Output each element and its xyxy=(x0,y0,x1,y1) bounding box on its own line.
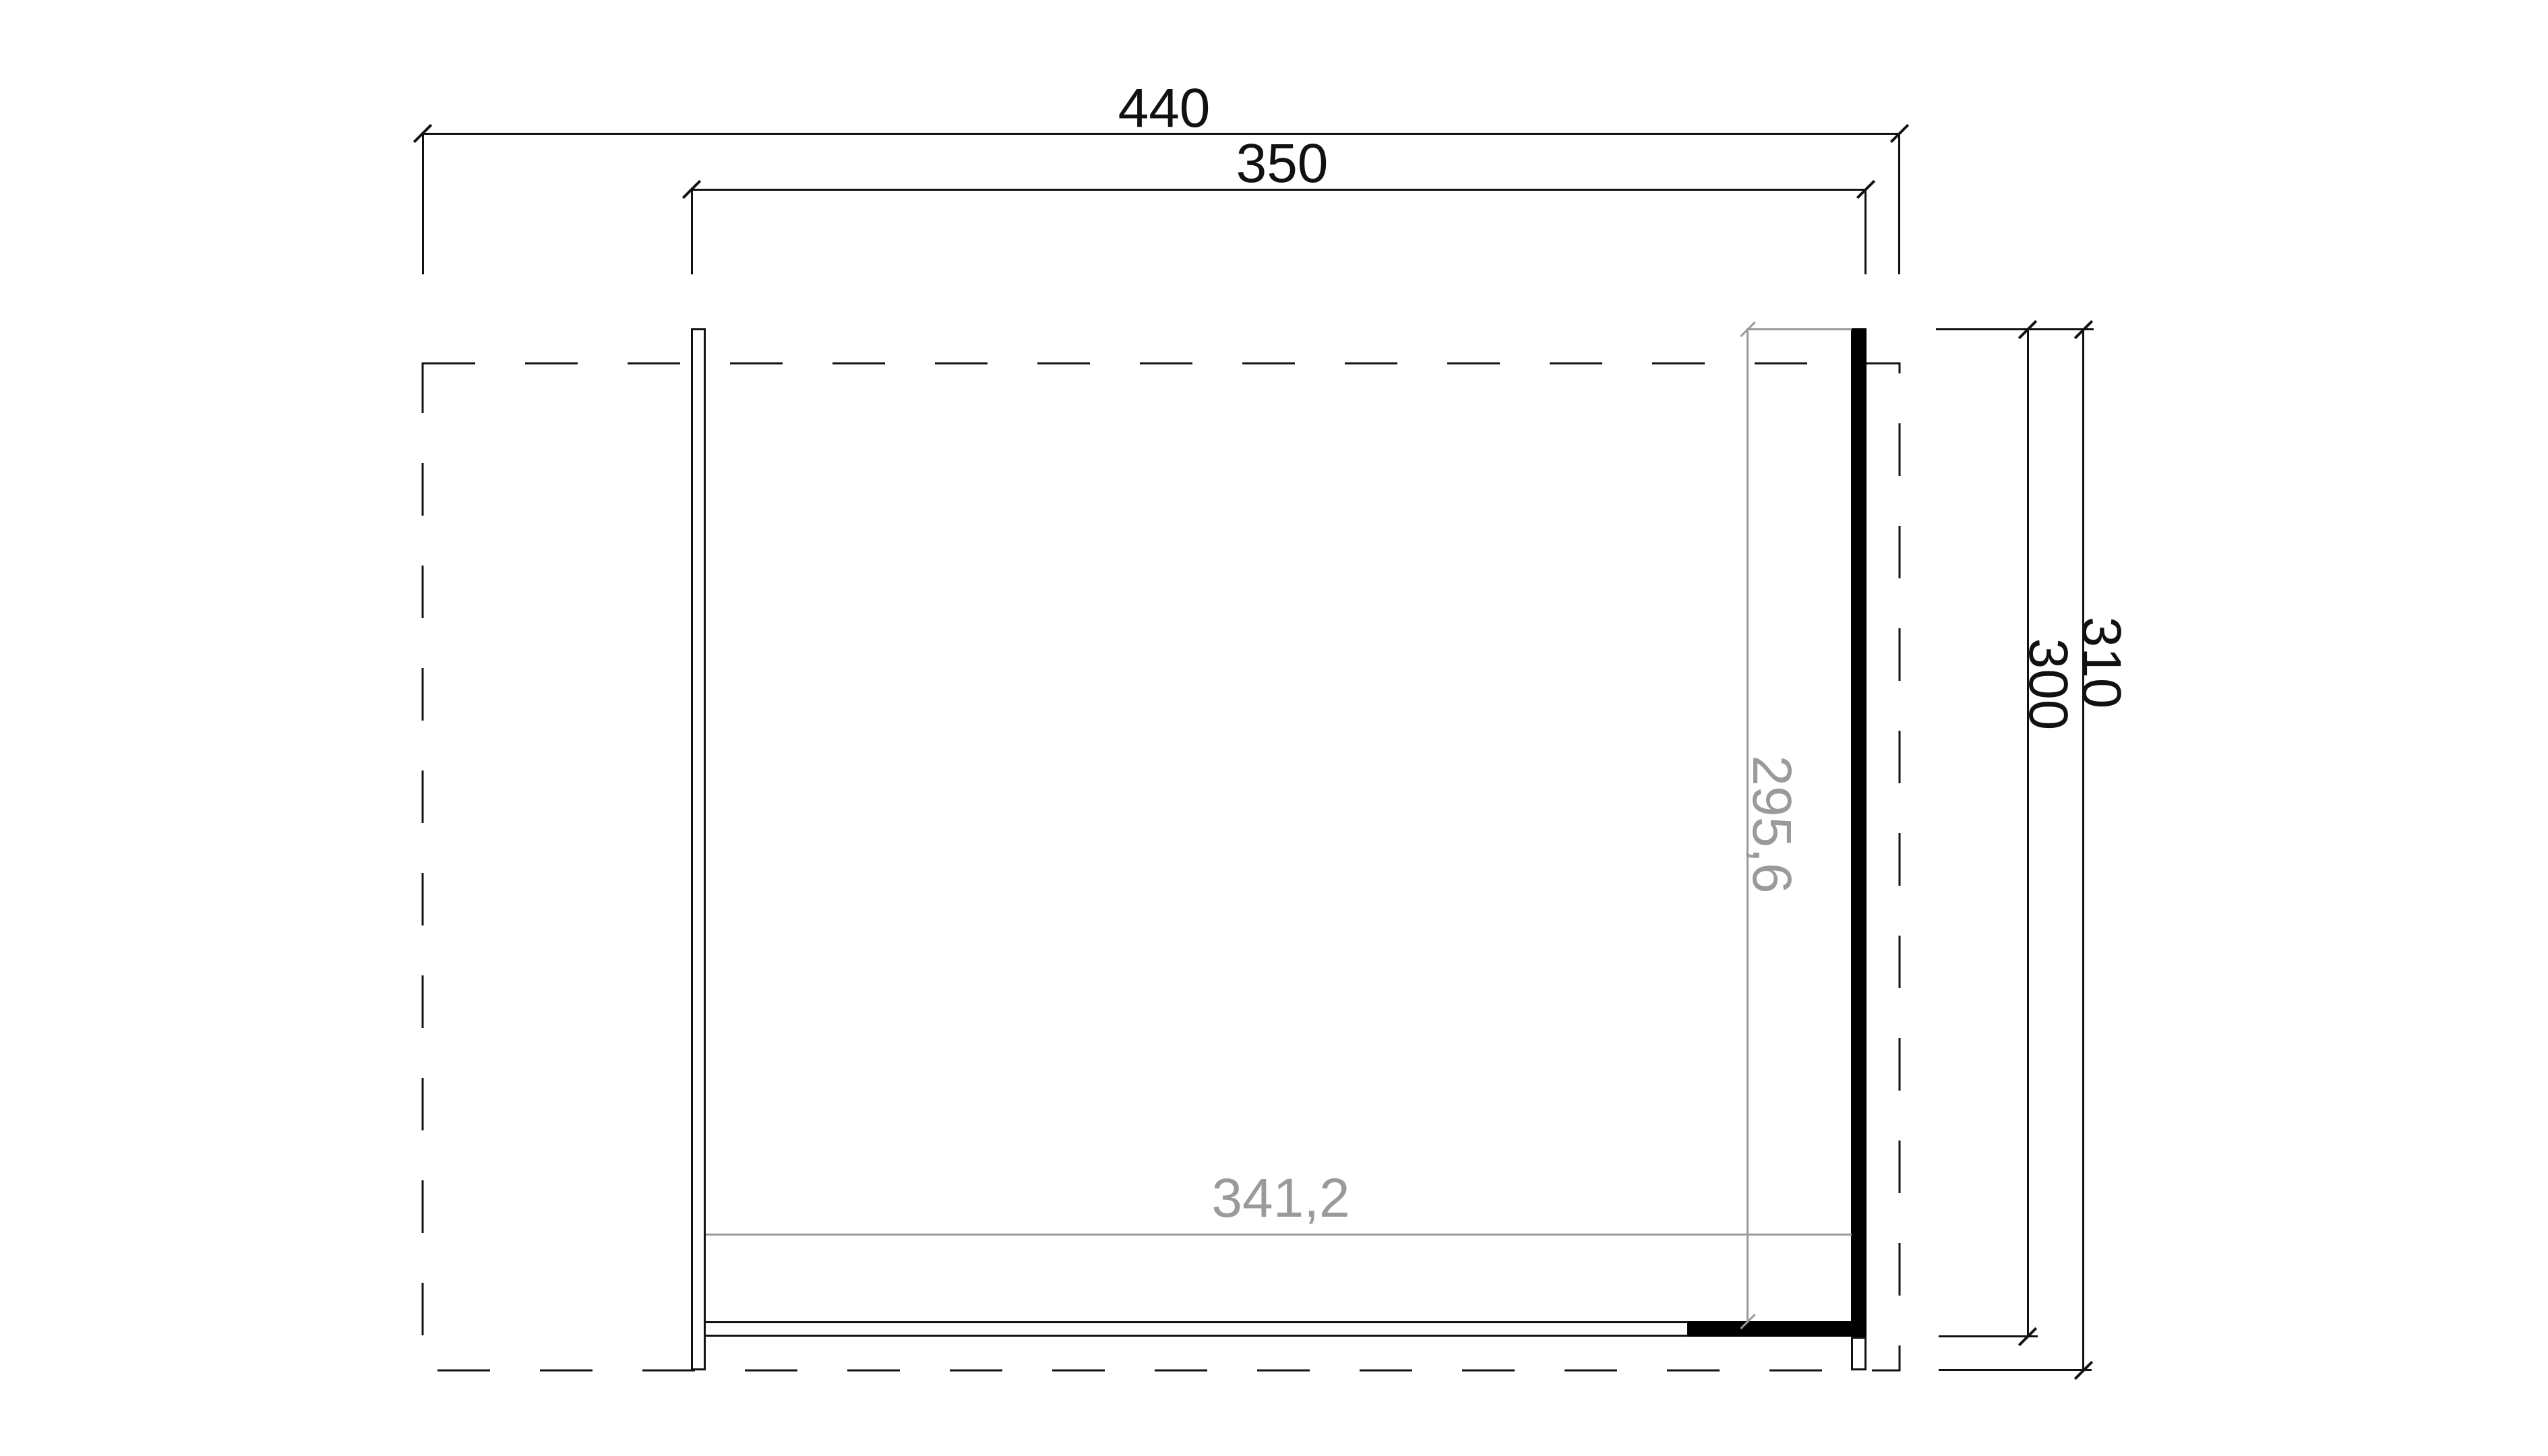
wall-back xyxy=(704,1321,1689,1337)
label-interior-depth: 295,6 xyxy=(1744,755,1799,893)
dashed-outline-layer xyxy=(0,0,2548,1456)
label-side-wall-length: 310 xyxy=(2073,617,2129,709)
wall-back-highlighted-segment xyxy=(1687,1321,1867,1337)
wall-left xyxy=(691,328,706,1370)
extension-line-right-top xyxy=(1936,328,2094,330)
extension-line-right-bottom-310 xyxy=(1939,1369,2092,1371)
label-wall-outer-depth: 300 xyxy=(2020,638,2075,731)
extension-line-440-left xyxy=(422,133,424,274)
extension-line-440-right xyxy=(1898,133,1900,274)
dashed-overhang-outline xyxy=(423,363,1900,1370)
extension-line-350-right xyxy=(1864,189,1867,274)
wall-right-highlighted-segment xyxy=(1851,328,1867,1337)
label-overall-width: 440 xyxy=(1118,81,1211,136)
extension-line-350-left xyxy=(691,189,693,274)
dimension-line-310 xyxy=(2082,329,2084,1371)
label-wall-outer-width: 350 xyxy=(1236,136,1329,191)
floor-plan-drawing: 440 350 295,6 341,2 300 310 xyxy=(0,0,2548,1456)
extension-line-right-bottom-300 xyxy=(1939,1335,2038,1337)
dimension-line-341-2 xyxy=(706,1234,1852,1236)
extension-line-295-6-top xyxy=(1747,328,1852,330)
dimension-line-300 xyxy=(2027,329,2029,1337)
label-interior-width: 341,2 xyxy=(1211,1171,1349,1226)
wall-right-end-post xyxy=(1851,1337,1867,1370)
